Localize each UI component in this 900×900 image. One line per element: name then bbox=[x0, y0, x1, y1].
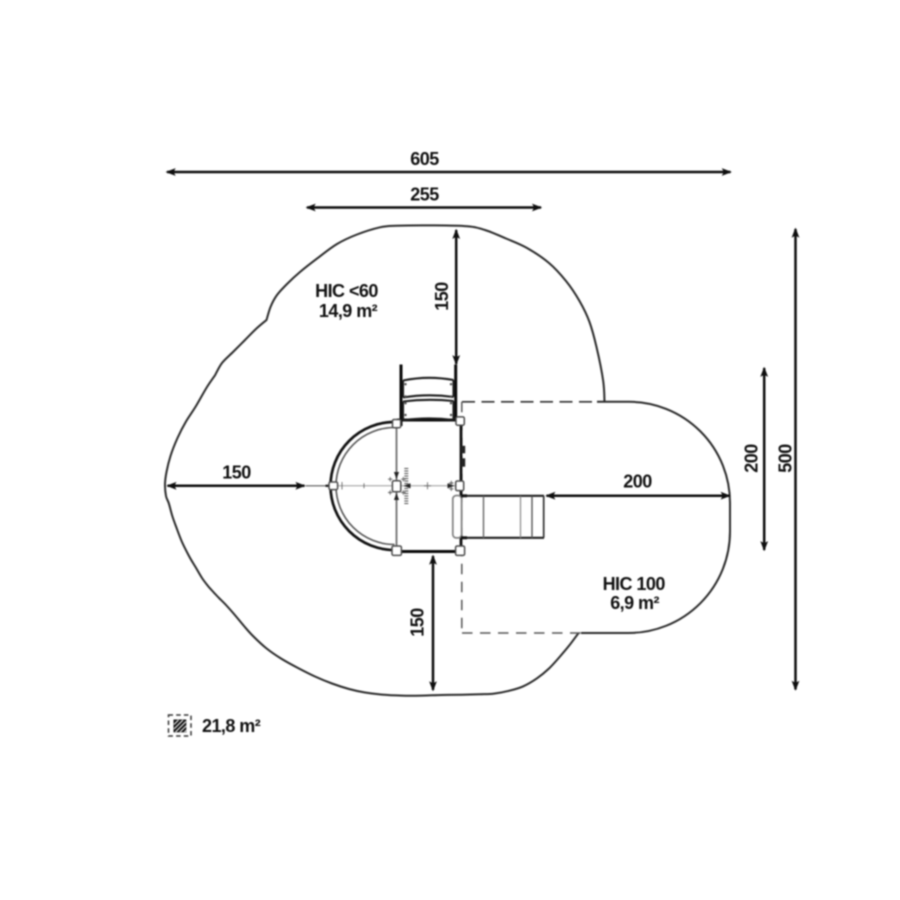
svg-text:605: 605 bbox=[410, 149, 439, 169]
svg-text:14,9 m²: 14,9 m² bbox=[319, 301, 378, 321]
svg-text:21,8 m²: 21,8 m² bbox=[202, 716, 261, 736]
svg-text:6,9 m²: 6,9 m² bbox=[610, 593, 659, 613]
svg-text:500: 500 bbox=[776, 444, 796, 473]
svg-text:150: 150 bbox=[408, 608, 428, 637]
svg-text:200: 200 bbox=[742, 444, 762, 473]
svg-text:200: 200 bbox=[623, 472, 652, 492]
svg-text:150: 150 bbox=[432, 282, 452, 311]
svg-text:HIC 100: HIC 100 bbox=[603, 574, 666, 594]
svg-text:255: 255 bbox=[410, 185, 439, 205]
svg-text:150: 150 bbox=[222, 463, 251, 483]
svg-text:HIC <60: HIC <60 bbox=[315, 281, 378, 301]
